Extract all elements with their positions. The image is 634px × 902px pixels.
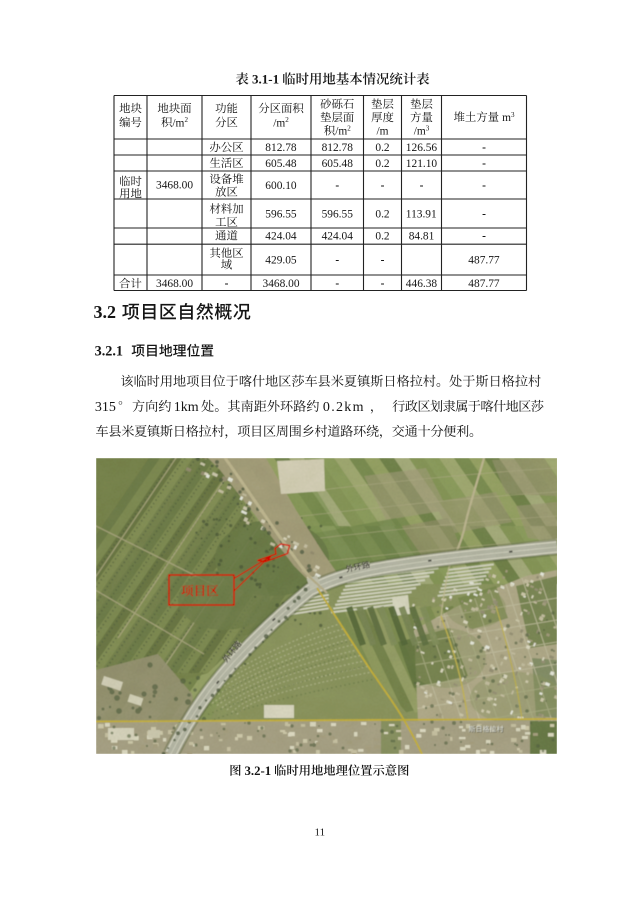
svg-text:/m: /m bbox=[414, 126, 426, 138]
svg-text:-: - bbox=[420, 180, 424, 192]
svg-text:m: m bbox=[502, 112, 511, 124]
svg-text:812.78: 812.78 bbox=[322, 142, 354, 154]
svg-text:-: - bbox=[482, 209, 486, 221]
svg-text:424.04: 424.04 bbox=[265, 231, 297, 243]
svg-text:3468.00: 3468.00 bbox=[156, 179, 193, 191]
svg-text:0.2: 0.2 bbox=[375, 209, 390, 221]
svg-text:/m: /m bbox=[377, 126, 389, 138]
svg-text:/m: /m bbox=[273, 117, 285, 129]
svg-text:-: - bbox=[482, 142, 486, 154]
svg-text:3468.00: 3468.00 bbox=[263, 278, 300, 290]
svg-text:3.2: 3.2 bbox=[94, 302, 117, 322]
svg-text:2: 2 bbox=[347, 125, 351, 133]
svg-text:487.77: 487.77 bbox=[468, 278, 500, 290]
svg-text:429.05: 429.05 bbox=[265, 254, 297, 266]
svg-text:84.81: 84.81 bbox=[409, 231, 435, 243]
svg-text:1km: 1km bbox=[174, 400, 199, 415]
svg-text:/m: /m bbox=[172, 117, 184, 129]
svg-text:600.10: 600.10 bbox=[265, 180, 297, 192]
svg-text:605.48: 605.48 bbox=[322, 158, 354, 170]
svg-text:487.77: 487.77 bbox=[468, 254, 500, 266]
svg-text:/m: /m bbox=[335, 126, 347, 138]
svg-text:3: 3 bbox=[426, 125, 430, 133]
svg-text:-: - bbox=[225, 278, 229, 290]
svg-text:121.10: 121.10 bbox=[406, 158, 438, 170]
svg-text:3468.00: 3468.00 bbox=[156, 278, 193, 290]
svg-text:3.1-1: 3.1-1 bbox=[252, 72, 279, 87]
svg-text:605.48: 605.48 bbox=[265, 158, 297, 170]
svg-text:-: - bbox=[482, 158, 486, 170]
svg-text:2: 2 bbox=[185, 116, 189, 124]
svg-text:-: - bbox=[335, 254, 339, 266]
svg-text:596.55: 596.55 bbox=[265, 209, 297, 221]
svg-text:-: - bbox=[335, 180, 339, 192]
svg-text:596.55: 596.55 bbox=[322, 209, 354, 221]
svg-text:0.2: 0.2 bbox=[375, 231, 390, 243]
svg-text:3.2-1: 3.2-1 bbox=[245, 764, 272, 778]
svg-text:-: - bbox=[381, 180, 385, 192]
svg-text:3: 3 bbox=[511, 111, 515, 119]
svg-text:0.2: 0.2 bbox=[375, 142, 390, 154]
svg-text:315: 315 bbox=[95, 400, 116, 415]
svg-text:-: - bbox=[381, 254, 385, 266]
svg-text:2: 2 bbox=[285, 116, 289, 124]
svg-text:-: - bbox=[482, 231, 486, 243]
svg-text:126.56: 126.56 bbox=[406, 142, 438, 154]
svg-text:3.2.1: 3.2.1 bbox=[95, 344, 123, 360]
svg-text:113.91: 113.91 bbox=[406, 209, 437, 221]
svg-text:-: - bbox=[381, 278, 385, 290]
svg-text:-: - bbox=[335, 278, 339, 290]
svg-text:-: - bbox=[482, 180, 486, 192]
svg-text:446.38: 446.38 bbox=[406, 278, 438, 290]
svg-text:424.04: 424.04 bbox=[322, 231, 354, 243]
svg-text:0.2km: 0.2km bbox=[323, 400, 365, 415]
svg-text:0.2: 0.2 bbox=[375, 158, 390, 170]
svg-text:812.78: 812.78 bbox=[265, 142, 297, 154]
svg-text:11: 11 bbox=[315, 827, 326, 839]
